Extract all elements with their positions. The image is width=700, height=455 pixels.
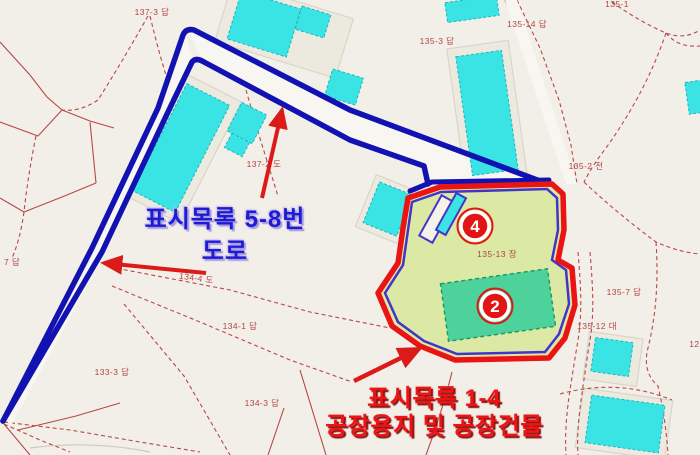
- parcel-label: 135-2 전: [569, 161, 604, 171]
- parcel-label: 135-12 대: [577, 321, 617, 331]
- marker-4-number: 4: [470, 217, 480, 236]
- marker-2-number: 2: [490, 297, 499, 316]
- map-background: [0, 0, 700, 455]
- parcel-label: 134-1 답: [223, 321, 258, 331]
- parcel-label: 123: [689, 339, 700, 349]
- cadastral-map-canvas[interactable]: 137-3 답 135-3 답 135-14 답 135-1 135-2 전 1…: [0, 0, 700, 455]
- parcel-label: 137-3 답: [135, 7, 170, 17]
- parcel-label: 133-3 답: [95, 367, 130, 377]
- parcel-label: 134-3 답: [245, 398, 280, 408]
- parcel-label: 135-14 답: [507, 19, 547, 29]
- parcel-label: 135-1: [605, 0, 629, 9]
- parcel-label: 135-3 답: [420, 36, 455, 46]
- marker-4-badge[interactable]: 4: [458, 209, 493, 244]
- cadastral-map-viewport[interactable]: 137-3 답 135-3 답 135-14 답 135-1 135-2 전 1…: [0, 0, 700, 455]
- parcel-label: 135-13 장: [477, 249, 517, 259]
- building-rect: [585, 395, 665, 453]
- marker-2-badge[interactable]: 2: [478, 289, 513, 324]
- parcel-label: 7 답: [4, 257, 20, 267]
- parcel-label: 135-7 답: [607, 287, 642, 297]
- parcel-label: 137-2 도: [247, 159, 282, 169]
- building-rect: [591, 338, 633, 377]
